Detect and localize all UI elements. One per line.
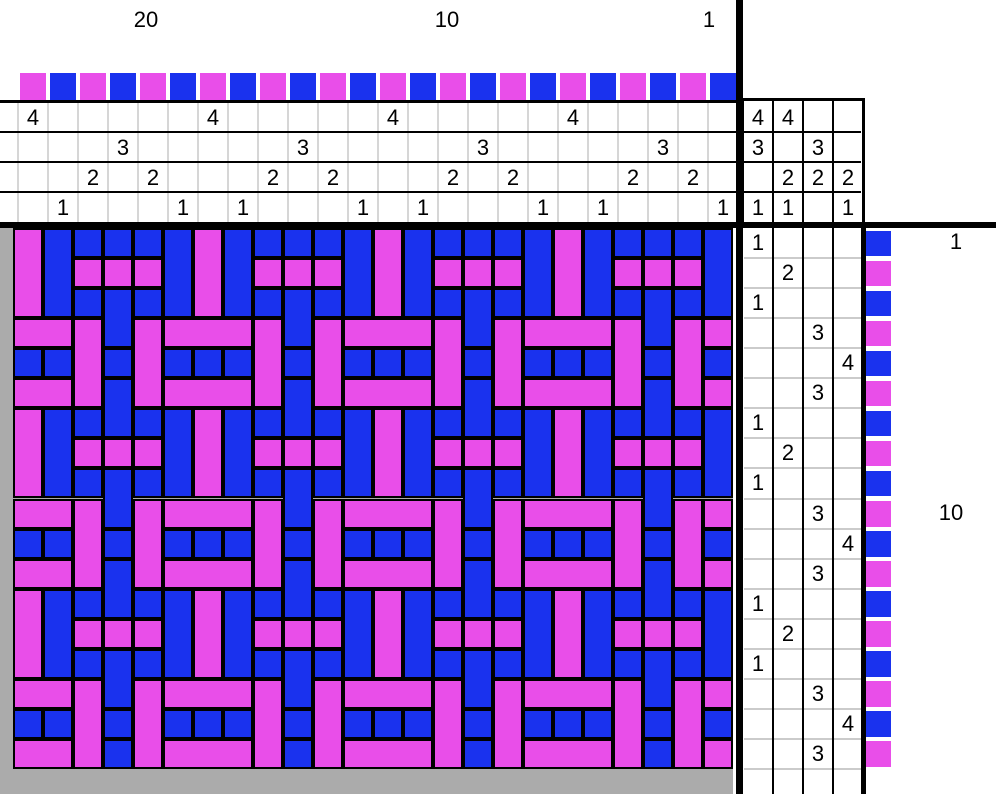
warp-color-swatch[interactable] — [230, 73, 256, 100]
warp-color-swatch[interactable] — [290, 73, 316, 100]
drawdown-warp-float — [313, 679, 343, 769]
tieup-row-line — [744, 161, 861, 163]
drawdown-warp-float — [313, 438, 343, 468]
threading-cell[interactable]: 1 — [57, 197, 69, 219]
treadling-cell[interactable]: 2 — [782, 442, 794, 464]
drawdown-weft-float — [463, 348, 493, 378]
drawdown-weft-float — [703, 679, 733, 709]
threading-cell[interactable]: 2 — [507, 167, 519, 189]
drawdown-weft-float — [373, 709, 403, 739]
treadling-cell[interactable]: 3 — [812, 743, 824, 765]
tieup-cell[interactable]: 2 — [842, 167, 854, 189]
drawdown-warp-float — [343, 348, 373, 378]
drawdown-warp-float — [133, 318, 163, 408]
drawdown-weft-float — [193, 709, 223, 739]
drawdown-weft-float — [493, 589, 523, 619]
warp-color-swatch[interactable] — [380, 73, 406, 100]
drawdown-warp-float — [283, 468, 313, 528]
drawdown-warp-float — [583, 228, 613, 318]
weft-color-swatch[interactable] — [866, 411, 891, 437]
drawdown-weft-float — [283, 529, 313, 559]
drawdown-weft-float — [73, 468, 103, 498]
threading-cell[interactable]: 1 — [177, 197, 189, 219]
drawdown-warp-float — [343, 589, 373, 679]
drawdown-weft-float — [463, 709, 493, 739]
drawdown-warp-float — [73, 258, 103, 288]
warp-color-swatch[interactable] — [350, 73, 376, 100]
drawdown-warp-float — [13, 589, 43, 679]
drawdown-warp-float — [403, 589, 433, 679]
warp-color-swatch[interactable] — [590, 73, 616, 100]
drawdown-weft-float — [283, 258, 313, 288]
drawdown-weft-float — [703, 318, 733, 348]
weft-color-swatch[interactable] — [866, 351, 891, 377]
drawdown-weft-float — [613, 228, 643, 258]
treadling-cell[interactable]: 1 — [752, 232, 764, 254]
drawdown-weft-float — [73, 288, 103, 318]
drawdown-warp-float — [463, 559, 493, 619]
threading-cell[interactable]: 2 — [687, 167, 699, 189]
drawdown-weft-float — [523, 739, 613, 769]
drawdown-warp-float — [223, 228, 253, 318]
drawdown-warp-float — [193, 408, 223, 498]
drawdown-weft-float — [103, 619, 133, 649]
drawdown-warp-float — [103, 378, 133, 438]
warp-bar-underline — [0, 100, 736, 103]
treadling-cell[interactable]: 1 — [752, 472, 764, 494]
weft-color-swatch[interactable] — [866, 441, 891, 467]
warp-color-swatch[interactable] — [500, 73, 526, 100]
drawdown-warp-float — [193, 228, 223, 318]
tieup-row-line — [744, 131, 861, 133]
drawdown-weft-float — [553, 348, 583, 378]
drawdown-warp-float — [373, 589, 403, 679]
drawdown-warp-float — [13, 408, 43, 498]
treadling-weft-separator-line — [861, 228, 866, 794]
drawdown-warp-float — [223, 348, 253, 378]
tieup-cell[interactable]: 1 — [752, 197, 764, 219]
drawdown-warp-float — [433, 258, 463, 288]
drawdown-weft-float — [343, 499, 433, 529]
drawdown-warp-float — [463, 649, 493, 709]
drawdown-weft-float — [673, 228, 703, 258]
weft-color-swatch[interactable] — [866, 471, 891, 497]
drawdown-weft-float — [463, 529, 493, 559]
drawdown-warp-float — [223, 408, 253, 498]
weft-color-swatch[interactable] — [866, 531, 891, 557]
drawdown-warp-float — [433, 499, 463, 589]
drawdown-weft-float — [433, 468, 463, 498]
threading-cell[interactable]: 2 — [87, 167, 99, 189]
drawdown-warp-float — [493, 438, 523, 468]
weft-color-swatch[interactable] — [866, 381, 891, 407]
drawdown-weft-float — [13, 559, 73, 589]
drawdown-weft-float — [643, 529, 673, 559]
drawdown-weft-float — [253, 649, 283, 679]
warp-color-swatch[interactable] — [680, 73, 706, 100]
drawdown-weft-float — [553, 529, 583, 559]
tieup-cell[interactable]: 3 — [752, 137, 764, 159]
treadling-column-line — [802, 228, 804, 794]
tieup-cell[interactable]: 3 — [812, 137, 824, 159]
drawdown-warp-float — [343, 228, 373, 318]
drawdown-weft-float — [163, 679, 253, 709]
treadling-cell[interactable]: 3 — [812, 382, 824, 404]
drawdown-weft-float — [133, 228, 163, 258]
drawdown-weft-float — [493, 408, 523, 438]
treadling-cell[interactable]: 4 — [842, 533, 854, 555]
drawdown-warp-float — [373, 228, 403, 318]
drawdown-warp-float — [223, 589, 253, 679]
threading-cell[interactable]: 2 — [267, 167, 279, 189]
weft-color-swatch[interactable] — [866, 711, 891, 737]
treadling-cell[interactable]: 3 — [812, 503, 824, 525]
drawdown-weft-float — [253, 468, 283, 498]
drawdown-weft-float — [433, 408, 463, 438]
treadling-cell[interactable]: 2 — [782, 623, 794, 645]
drawdown-warp-float — [643, 468, 673, 528]
warp-color-swatch[interactable] — [440, 73, 466, 100]
warp-count-label: 10 — [435, 9, 459, 31]
drawdown-warp-float — [43, 589, 73, 679]
threading-cell[interactable]: 4 — [207, 107, 219, 129]
drawdown-warp-float — [403, 529, 433, 559]
drawdown-weft-float — [13, 739, 73, 769]
drawdown-warp-float — [283, 739, 313, 769]
treadling-cell[interactable]: 4 — [842, 713, 854, 735]
drawdown-warp-float — [553, 408, 583, 498]
drawdown-weft-float — [253, 288, 283, 318]
warp-color-swatch[interactable] — [470, 73, 496, 100]
drawdown-warp-float — [583, 348, 613, 378]
drawdown-warp-float — [613, 679, 643, 769]
warp-color-swatch[interactable] — [260, 73, 286, 100]
drawdown-warp-float — [103, 468, 133, 528]
treadling-cell[interactable]: 1 — [752, 593, 764, 615]
drawdown-warp-float — [673, 499, 703, 589]
drawdown-warp-float — [283, 228, 313, 258]
weft-color-swatch[interactable] — [866, 291, 891, 317]
drawdown-weft-float — [103, 709, 133, 739]
warp-color-swatch[interactable] — [560, 73, 586, 100]
drawdown-warp-float — [403, 348, 433, 378]
tieup-cell[interactable]: 2 — [812, 167, 824, 189]
threading-cell[interactable]: 1 — [357, 197, 369, 219]
drawdown-weft-float — [553, 709, 583, 739]
drawdown-weft-float — [703, 378, 733, 408]
drawdown-weft-float — [673, 649, 703, 679]
drawdown-weft-float — [343, 318, 433, 348]
drawdown-warp-float — [163, 529, 193, 559]
drawdown-warp-float — [253, 258, 283, 288]
drawdown-warp-float — [103, 559, 133, 619]
drawdown-weft-float — [433, 589, 463, 619]
drawdown-weft-float — [703, 559, 733, 589]
threading-cell[interactable]: 1 — [417, 197, 429, 219]
drawdown-warp-float — [163, 348, 193, 378]
drawdown-warp-float — [313, 499, 343, 589]
tieup-cell[interactable]: 1 — [782, 197, 794, 219]
threading-cell[interactable]: 1 — [717, 197, 729, 219]
threading-cell[interactable]: 3 — [117, 137, 129, 159]
threading-cell[interactable]: 1 — [597, 197, 609, 219]
threading-cell[interactable]: 4 — [387, 107, 399, 129]
threading-cell[interactable]: 2 — [447, 167, 459, 189]
drawdown-warp-float — [463, 378, 493, 438]
drawdown-weft-float — [613, 649, 643, 679]
treadling-cell[interactable]: 2 — [782, 262, 794, 284]
threading-cell[interactable]: 1 — [237, 197, 249, 219]
drawdown-warp-float — [613, 318, 643, 408]
drawdown-warp-float — [253, 438, 283, 468]
weft-color-swatch[interactable] — [866, 561, 891, 587]
drawdown-warp-float — [163, 589, 193, 679]
drawdown-warp-float — [283, 288, 313, 348]
drawdown-weft-float — [13, 378, 73, 408]
weft-color-swatch[interactable] — [866, 741, 891, 767]
drawdown-weft-float — [313, 408, 343, 438]
drawdown-weft-float — [673, 589, 703, 619]
drawdown-weft-float — [253, 228, 283, 258]
drawdown-warp-float — [43, 408, 73, 498]
weft-count-label: 1 — [950, 231, 962, 253]
drawdown-weft-float — [163, 559, 253, 589]
warp-color-swatch[interactable] — [320, 73, 346, 100]
drawdown-warp-float — [553, 589, 583, 679]
drawdown-weft-float — [73, 228, 103, 258]
drawdown-warp-float — [673, 619, 703, 649]
drawdown-weft-float — [463, 438, 493, 468]
drawdown-warp-float — [583, 408, 613, 498]
treadling-cell[interactable]: 3 — [812, 563, 824, 585]
drawdown-warp-float — [253, 318, 283, 408]
threading-cell[interactable]: 2 — [627, 167, 639, 189]
drawdown-warp-float — [253, 499, 283, 589]
drawdown-warp-float — [403, 228, 433, 318]
drawdown-warp-float — [43, 529, 73, 559]
drawdown-warp-float — [643, 739, 673, 769]
drawdown-warp-float — [373, 408, 403, 498]
drawdown-weft-float — [343, 739, 433, 769]
drawdown-weft-float — [523, 499, 613, 529]
drawdown-warp-float — [283, 559, 313, 619]
tieup-cell[interactable]: 4 — [782, 107, 794, 129]
threading-cell[interactable]: 1 — [537, 197, 549, 219]
drawdown-weft-float — [13, 529, 43, 559]
drawdown-warp-float — [463, 288, 493, 348]
weft-color-swatch[interactable] — [866, 621, 891, 647]
drawdown-warp-float — [133, 438, 163, 468]
drawdown-weft-float — [643, 348, 673, 378]
drawdown-weft-float — [523, 318, 613, 348]
threading-cell[interactable]: 2 — [147, 167, 159, 189]
drawdown-warp-float — [673, 679, 703, 769]
drawdown-warp-float — [433, 679, 463, 769]
drawdown-warp-float — [73, 679, 103, 769]
drawdown-weft-float — [283, 709, 313, 739]
drawdown-warp-float — [463, 468, 493, 528]
drawdown-weft-float — [373, 529, 403, 559]
threading-cell[interactable]: 4 — [27, 107, 39, 129]
threading-cell[interactable]: 3 — [477, 137, 489, 159]
drawdown-weft-float — [133, 589, 163, 619]
weft-color-swatch[interactable] — [866, 591, 891, 617]
drawdown-warp-float — [643, 559, 673, 619]
drawdown-weft-float — [373, 348, 403, 378]
drawdown-warp-float — [343, 529, 373, 559]
treadling-cell[interactable]: 1 — [752, 412, 764, 434]
drawdown-warp-float — [73, 499, 103, 589]
warp-color-swatch[interactable] — [20, 73, 46, 100]
drawdown-warp-float — [43, 348, 73, 378]
drawdown-warp-float — [643, 228, 673, 258]
drawdown-warp-float — [433, 318, 463, 408]
weaving-draft-editor: 412321412321412321412321 1341242312 1213… — [0, 0, 996, 794]
drawdown-warp-float — [703, 228, 733, 318]
weft-color-swatch[interactable] — [866, 261, 891, 287]
threading-row-line — [0, 131, 736, 133]
drawdown-warp-float — [73, 438, 103, 468]
warp-color-swatch[interactable] — [200, 73, 226, 100]
drawdown-weft-float — [523, 559, 613, 589]
drawdown-warp-float — [643, 649, 673, 709]
drawdown-warp-float — [133, 499, 163, 589]
drawdown-warp-float — [253, 679, 283, 769]
warp-color-swatch[interactable] — [530, 73, 556, 100]
drawdown-warp-float — [703, 589, 733, 679]
warp-count-label: 20 — [134, 9, 158, 31]
threading-row-line — [0, 161, 736, 163]
drawdown-weft-float — [193, 348, 223, 378]
drawdown-weft-float — [643, 258, 673, 288]
warp-color-swatch[interactable] — [50, 73, 76, 100]
drawdown-weft-float — [283, 619, 313, 649]
drawdown-warp-float — [403, 408, 433, 498]
tieup-cell[interactable]: 1 — [842, 197, 854, 219]
drawdown-warp-float — [493, 258, 523, 288]
drawdown-warp-float — [673, 438, 703, 468]
drawdown-warp-float — [403, 709, 433, 739]
drawdown-warp-float — [313, 318, 343, 408]
drawdown-weft-float — [313, 468, 343, 498]
drawdown-weft-float — [163, 318, 253, 348]
treadling-cell[interactable]: 3 — [812, 683, 824, 705]
drawdown-weft-float — [13, 348, 43, 378]
drawdown-warp-float — [493, 318, 523, 408]
treadling-cell[interactable]: 3 — [812, 322, 824, 344]
weft-color-swatch[interactable] — [866, 651, 891, 677]
drawdown-warp-float — [133, 679, 163, 769]
drawdown-warp-float — [493, 499, 523, 589]
drawdown-warp-float — [163, 709, 193, 739]
threading-row-line — [0, 191, 736, 193]
drawdown-weft-float — [253, 589, 283, 619]
drawdown-weft-float — [103, 348, 133, 378]
drawdown-weft-float — [613, 589, 643, 619]
drawdown-weft-float — [283, 438, 313, 468]
drawdown-weft-float — [163, 739, 253, 769]
treadling-cell[interactable]: 1 — [752, 653, 764, 675]
drawdown-warp-float — [73, 619, 103, 649]
drawdown-warp-float — [583, 529, 613, 559]
weft-color-swatch[interactable] — [866, 681, 891, 707]
weft-color-swatch[interactable] — [866, 501, 891, 527]
weft-color-swatch[interactable] — [866, 231, 891, 257]
drawdown-weft-float — [283, 348, 313, 378]
warp-color-swatch[interactable] — [620, 73, 646, 100]
drawdown-weft-float — [13, 709, 43, 739]
warp-weft-vertical-divider — [736, 0, 743, 794]
drawdown-warp-float — [133, 258, 163, 288]
drawdown-warp-float — [523, 709, 553, 739]
weft-color-swatch[interactable] — [866, 321, 891, 347]
drawdown-warp-float — [313, 619, 343, 649]
warp-color-swatch[interactable] — [410, 73, 436, 100]
drawdown-weft-float — [103, 529, 133, 559]
drawdown-weft-float — [613, 408, 643, 438]
drawdown-warp-float — [163, 408, 193, 498]
drawdown-warp-float — [103, 288, 133, 348]
drawdown-warp-float — [343, 408, 373, 498]
drawdown-weft-float — [433, 228, 463, 258]
warp-color-swatch[interactable] — [170, 73, 196, 100]
drawdown-weft-float — [433, 649, 463, 679]
threading-cell[interactable]: 2 — [327, 167, 339, 189]
warp-color-swatch[interactable] — [110, 73, 136, 100]
warp-color-swatch[interactable] — [80, 73, 106, 100]
drawdown-weft-float — [703, 739, 733, 769]
drawdown-warp-float — [343, 709, 373, 739]
drawdown-weft-float — [643, 709, 673, 739]
drawdown-weft-float — [343, 679, 433, 709]
drawdown-warp-float — [523, 529, 553, 559]
threading-cell[interactable]: 4 — [567, 107, 579, 129]
drawdown-weft-float — [493, 228, 523, 258]
drawdown-warp-float — [433, 438, 463, 468]
warp-color-swatch[interactable] — [140, 73, 166, 100]
threading-cell[interactable]: 3 — [657, 137, 669, 159]
drawdown-weft-float — [313, 228, 343, 258]
drawdown-warp-float — [583, 589, 613, 679]
warp-color-swatch[interactable] — [650, 73, 676, 100]
drawdown-weft-float — [13, 499, 73, 529]
drawdown-warp-float — [643, 288, 673, 348]
warp-color-swatch[interactable] — [710, 73, 736, 100]
drawdown-weft-float — [493, 468, 523, 498]
drawdown-weft-float — [133, 649, 163, 679]
drawdown-warp-float — [433, 619, 463, 649]
drawdown-warp-float — [673, 258, 703, 288]
drawdown-weft-float — [493, 288, 523, 318]
drawdown-weft-float — [673, 288, 703, 318]
treadling-cell[interactable]: 1 — [752, 292, 764, 314]
drawdown-weft-float — [463, 258, 493, 288]
drawdown-weft-float — [313, 288, 343, 318]
threading-cell[interactable]: 3 — [297, 137, 309, 159]
tieup-cell[interactable]: 4 — [752, 107, 764, 129]
drawdown-weft-float — [73, 408, 103, 438]
drawdown-warp-float — [703, 529, 733, 559]
treadling-cell[interactable]: 4 — [842, 352, 854, 374]
drawdown-weft-float — [73, 589, 103, 619]
tieup-cell[interactable]: 2 — [782, 167, 794, 189]
drawdown-warp-float — [463, 228, 493, 258]
weft-count-label: 10 — [939, 502, 963, 524]
drawdown-warp-float — [193, 589, 223, 679]
drawdown-warp-float — [613, 499, 643, 589]
drawdown-weft-float — [133, 408, 163, 438]
drawdown-warp-float — [613, 438, 643, 468]
